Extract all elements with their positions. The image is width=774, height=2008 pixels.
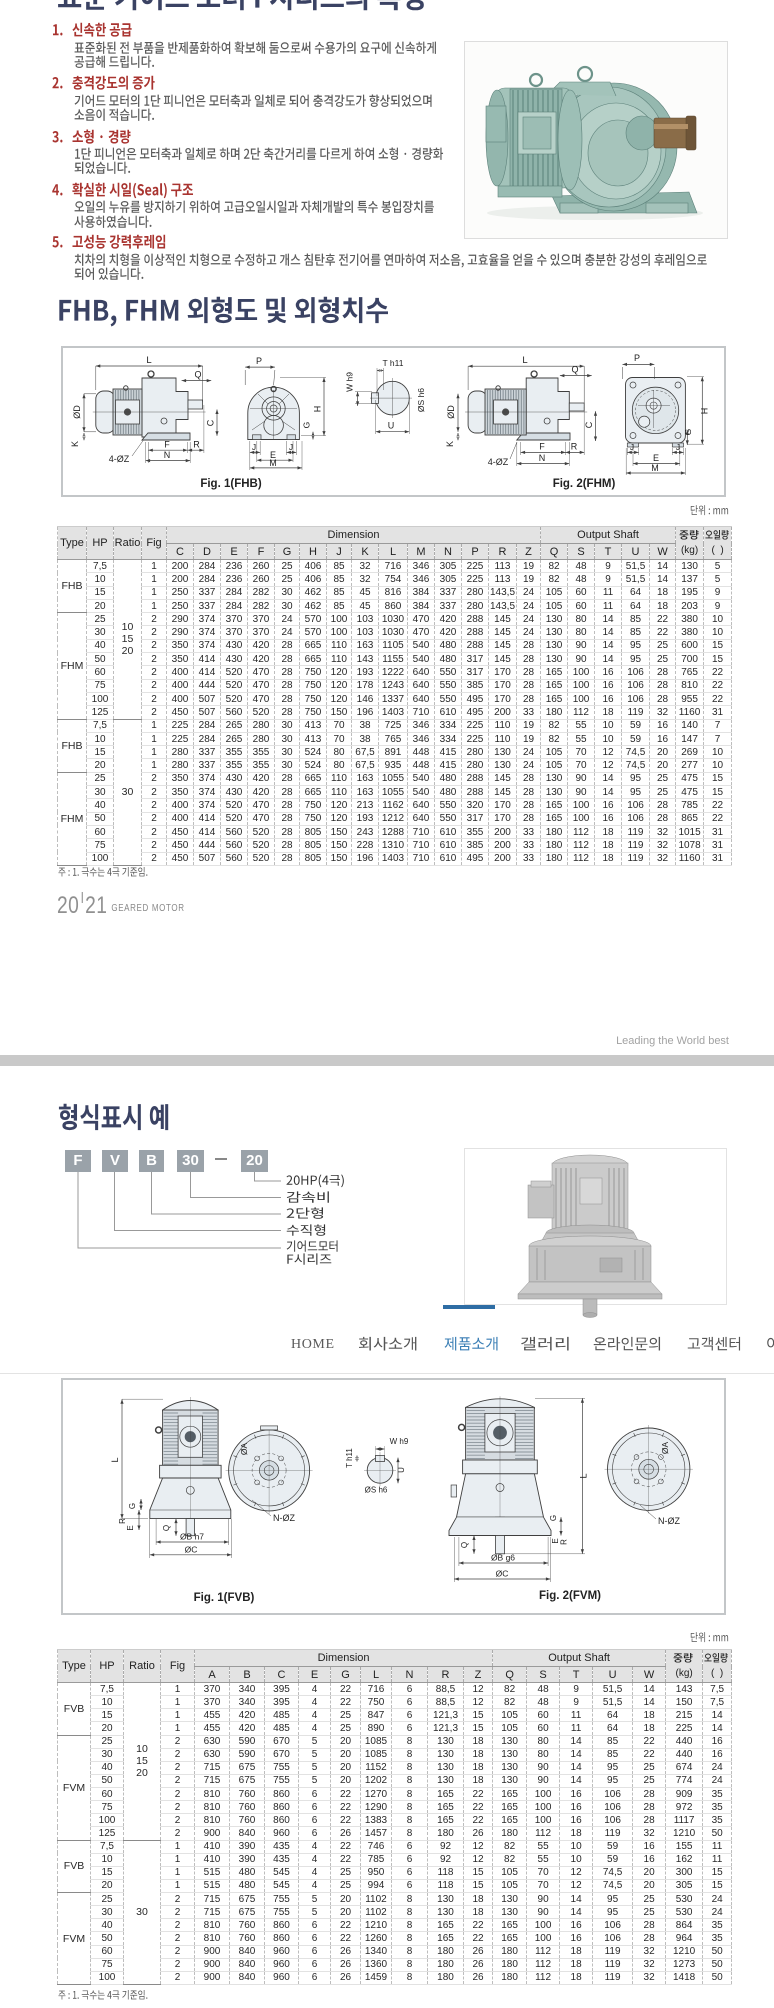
svg-text:E: E xyxy=(126,1525,135,1530)
svg-text:R: R xyxy=(193,440,200,450)
svg-text:M: M xyxy=(269,458,277,468)
svg-text:4-ØZ: 4-ØZ xyxy=(109,454,130,464)
svg-text:C: C xyxy=(206,419,216,426)
svg-text:L: L xyxy=(522,355,527,366)
svg-text:Q: Q xyxy=(162,1525,171,1531)
svg-text:4-ØZ: 4-ØZ xyxy=(488,457,509,467)
svg-text:ØC: ØC xyxy=(496,1569,509,1579)
svg-text:R: R xyxy=(560,1539,569,1545)
svg-text:N: N xyxy=(164,450,171,460)
svg-text:U: U xyxy=(388,421,395,431)
svg-text:W h9: W h9 xyxy=(345,372,355,392)
svg-text:ØD: ØD xyxy=(72,405,82,419)
svg-text:H: H xyxy=(313,406,323,413)
svg-text:ØB h7: ØB h7 xyxy=(180,1532,204,1542)
svg-text:ØS h6: ØS h6 xyxy=(365,1486,388,1495)
svg-text:F: F xyxy=(539,442,545,452)
svg-text:Q: Q xyxy=(571,365,578,375)
svg-text:N: N xyxy=(539,453,546,463)
svg-text:C: C xyxy=(584,421,594,428)
svg-text:G: G xyxy=(128,1503,137,1509)
svg-text:Fig. 1(FVB): Fig. 1(FVB) xyxy=(194,1592,255,1604)
svg-text:E: E xyxy=(653,453,659,463)
svg-text:T h11: T h11 xyxy=(383,358,404,368)
svg-text:ØS h6: ØS h6 xyxy=(416,388,426,412)
svg-text:ØC: ØC xyxy=(185,1544,198,1554)
svg-text:J: J xyxy=(676,442,680,452)
svg-text:Q: Q xyxy=(460,1542,469,1548)
svg-text:J: J xyxy=(630,442,634,452)
svg-text:Fig. 1(FHB): Fig. 1(FHB) xyxy=(200,478,261,490)
svg-text:L: L xyxy=(110,1457,120,1462)
svg-text:F: F xyxy=(164,440,170,450)
svg-text:H: H xyxy=(700,408,710,415)
svg-text:R: R xyxy=(118,1518,127,1524)
svg-text:ØB g6: ØB g6 xyxy=(491,1553,515,1563)
svg-text:Fig. 2(FHM): Fig. 2(FHM) xyxy=(553,478,616,490)
svg-text:ØA: ØA xyxy=(660,1442,670,1455)
svg-text:J: J xyxy=(252,442,256,452)
svg-text:ØA: ØA xyxy=(239,1443,249,1456)
svg-text:T h11: T h11 xyxy=(345,1448,354,1468)
svg-text:G: G xyxy=(302,422,312,429)
svg-text:P: P xyxy=(634,353,640,363)
svg-text:R: R xyxy=(571,442,578,452)
svg-text:Fig. 2(FVM): Fig. 2(FVM) xyxy=(539,1590,601,1602)
svg-text:W h9: W h9 xyxy=(390,1437,409,1446)
svg-text:K: K xyxy=(445,441,455,447)
svg-text:N-ØZ: N-ØZ xyxy=(658,1516,680,1526)
svg-text:P: P xyxy=(256,356,262,366)
svg-text:L: L xyxy=(146,355,151,366)
svg-text:G: G xyxy=(683,429,693,436)
svg-text:ØD: ØD xyxy=(446,405,456,419)
svg-text:G: G xyxy=(549,1515,558,1521)
svg-text:M: M xyxy=(651,463,659,473)
svg-text:J: J xyxy=(289,442,293,452)
svg-text:N-ØZ: N-ØZ xyxy=(273,1513,295,1523)
svg-text:Q: Q xyxy=(194,370,201,380)
svg-text:K: K xyxy=(70,441,80,447)
svg-text:L: L xyxy=(579,1473,589,1478)
